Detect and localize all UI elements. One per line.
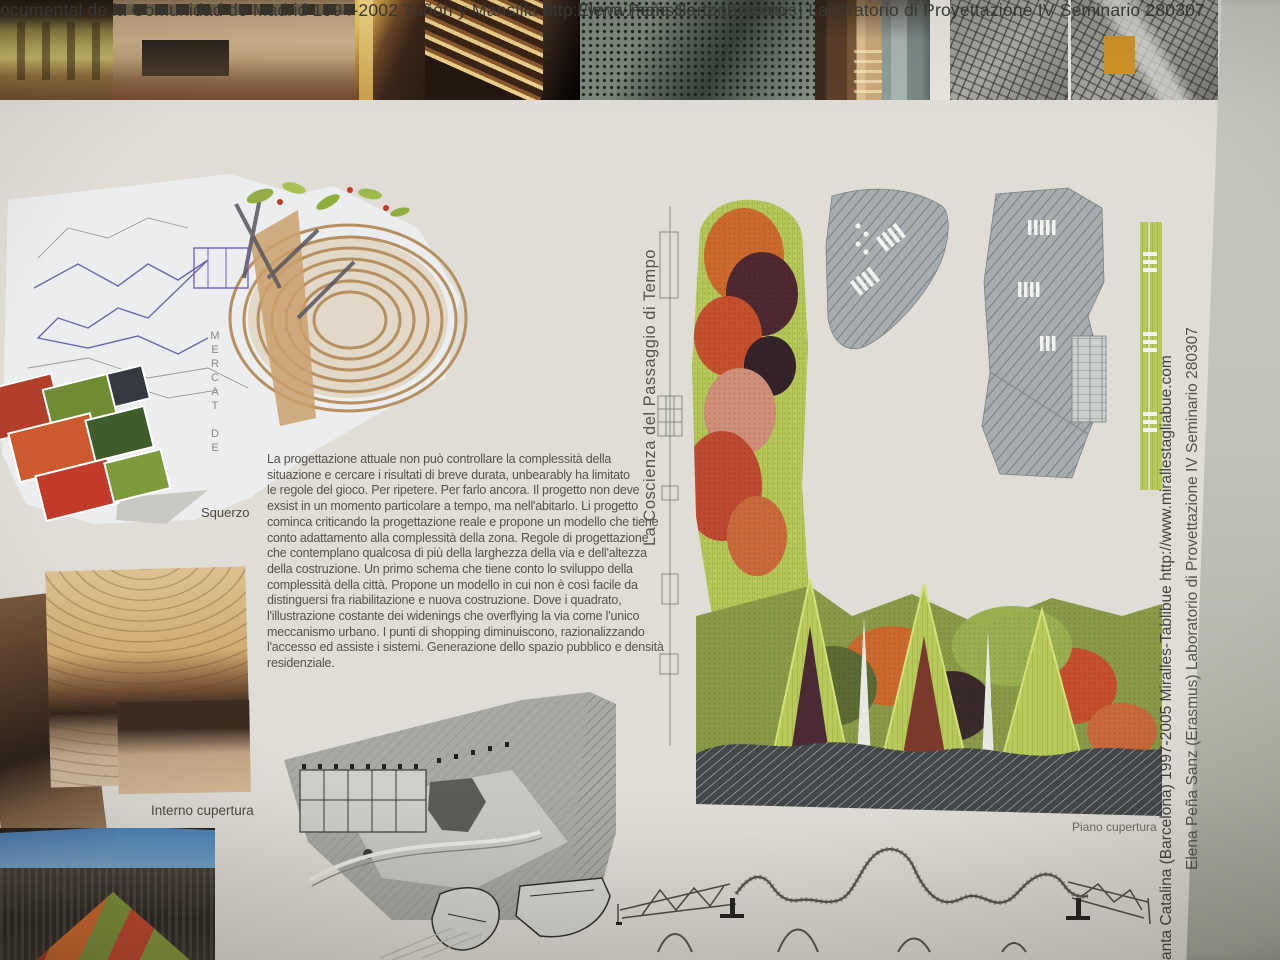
site-plan-drawing (272, 682, 622, 960)
roof-left-lobe (682, 194, 812, 618)
vertical-caption-left: La Coscienza del Passaggio di Tempo (641, 178, 667, 546)
caption-piano-cupertura: Piano cupertura (1072, 820, 1157, 834)
city-panorama-photo (0, 828, 215, 960)
hall-doorway (142, 40, 229, 76)
roof-elevation-drawing (602, 840, 1162, 960)
left-truss (618, 884, 736, 924)
caption-interno-cupertura: Interno cupertura (151, 803, 254, 818)
essay-paragraph: La progettazione attuale non può control… (267, 452, 671, 672)
roof-lower-band (696, 578, 1162, 760)
vertical-project-credit: anta Catalina (Barcelona) 1997-2005 Mira… (1158, 182, 1184, 960)
mercat-vertical-label: MERCAT DE (205, 330, 221, 456)
second-elevation-partial (658, 930, 1026, 953)
library-columns (0, 22, 113, 80)
roof-photo-floor (117, 700, 251, 794)
mosaic-roof-plan (652, 186, 1164, 834)
aerial-site-highlight (1104, 36, 1135, 74)
corridor-light-spots (854, 50, 882, 100)
gray-fragment-a (826, 189, 948, 349)
vertical-author-credit: Elena Peña Sanz (Erasmus) Laboratorio di… (1184, 192, 1208, 870)
poster-photograph: ocumental de la Comunidad de Madrid 1994… (0, 0, 1280, 960)
roof-dark-band (696, 742, 1162, 816)
header-author: Elena Peña Sanz (Erasmus) Laboratorio di… (577, 0, 1205, 21)
supports (616, 898, 1090, 925)
roof-interior-collage (0, 533, 258, 811)
caption-squerzo: Squerzo (201, 505, 249, 520)
gray-fragment-b (982, 188, 1106, 478)
